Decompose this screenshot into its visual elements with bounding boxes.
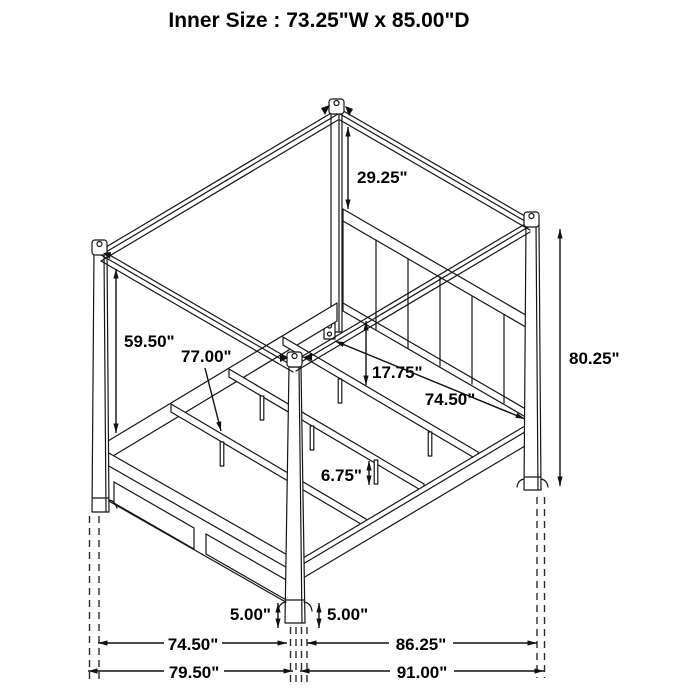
inner-size-title: Inner Size : 73.25"W x 85.00"D xyxy=(168,9,469,32)
canopy-bed-dimension-diagram: Inner Size : 73.25"W x 85.00"D xyxy=(0,0,700,700)
dim-slat-rail-length-label: 77.00" xyxy=(181,347,232,366)
dim-side-depth-label: 86.25" xyxy=(396,635,447,654)
footboard-drawers xyxy=(100,448,298,609)
dim-slat-leg-height-label: 6.75" xyxy=(321,466,362,485)
diagram-page: Inner Size : 73.25"W x 85.00"D xyxy=(0,0,700,700)
dim-side-rail-length-label: 74.50" xyxy=(425,390,476,409)
dim-footboard-width-label: 74.50" xyxy=(168,635,219,654)
dim-overall-height-label: 80.25" xyxy=(569,349,620,368)
dim-foot-height-left-label: 5.00" xyxy=(230,605,271,624)
rear-post xyxy=(324,110,342,339)
bed-drawing xyxy=(92,99,548,623)
dim-rail-to-canopy-label: 59.50" xyxy=(124,332,175,351)
dim-overall-depth-label: 91.00" xyxy=(397,663,448,682)
dim-overall-width-label: 79.50" xyxy=(169,663,220,682)
dim-foot-height-right-label: 5.00" xyxy=(327,605,368,624)
dim-canopy-to-headboard-label: 29.25" xyxy=(357,168,408,187)
slat-legs xyxy=(220,379,432,506)
